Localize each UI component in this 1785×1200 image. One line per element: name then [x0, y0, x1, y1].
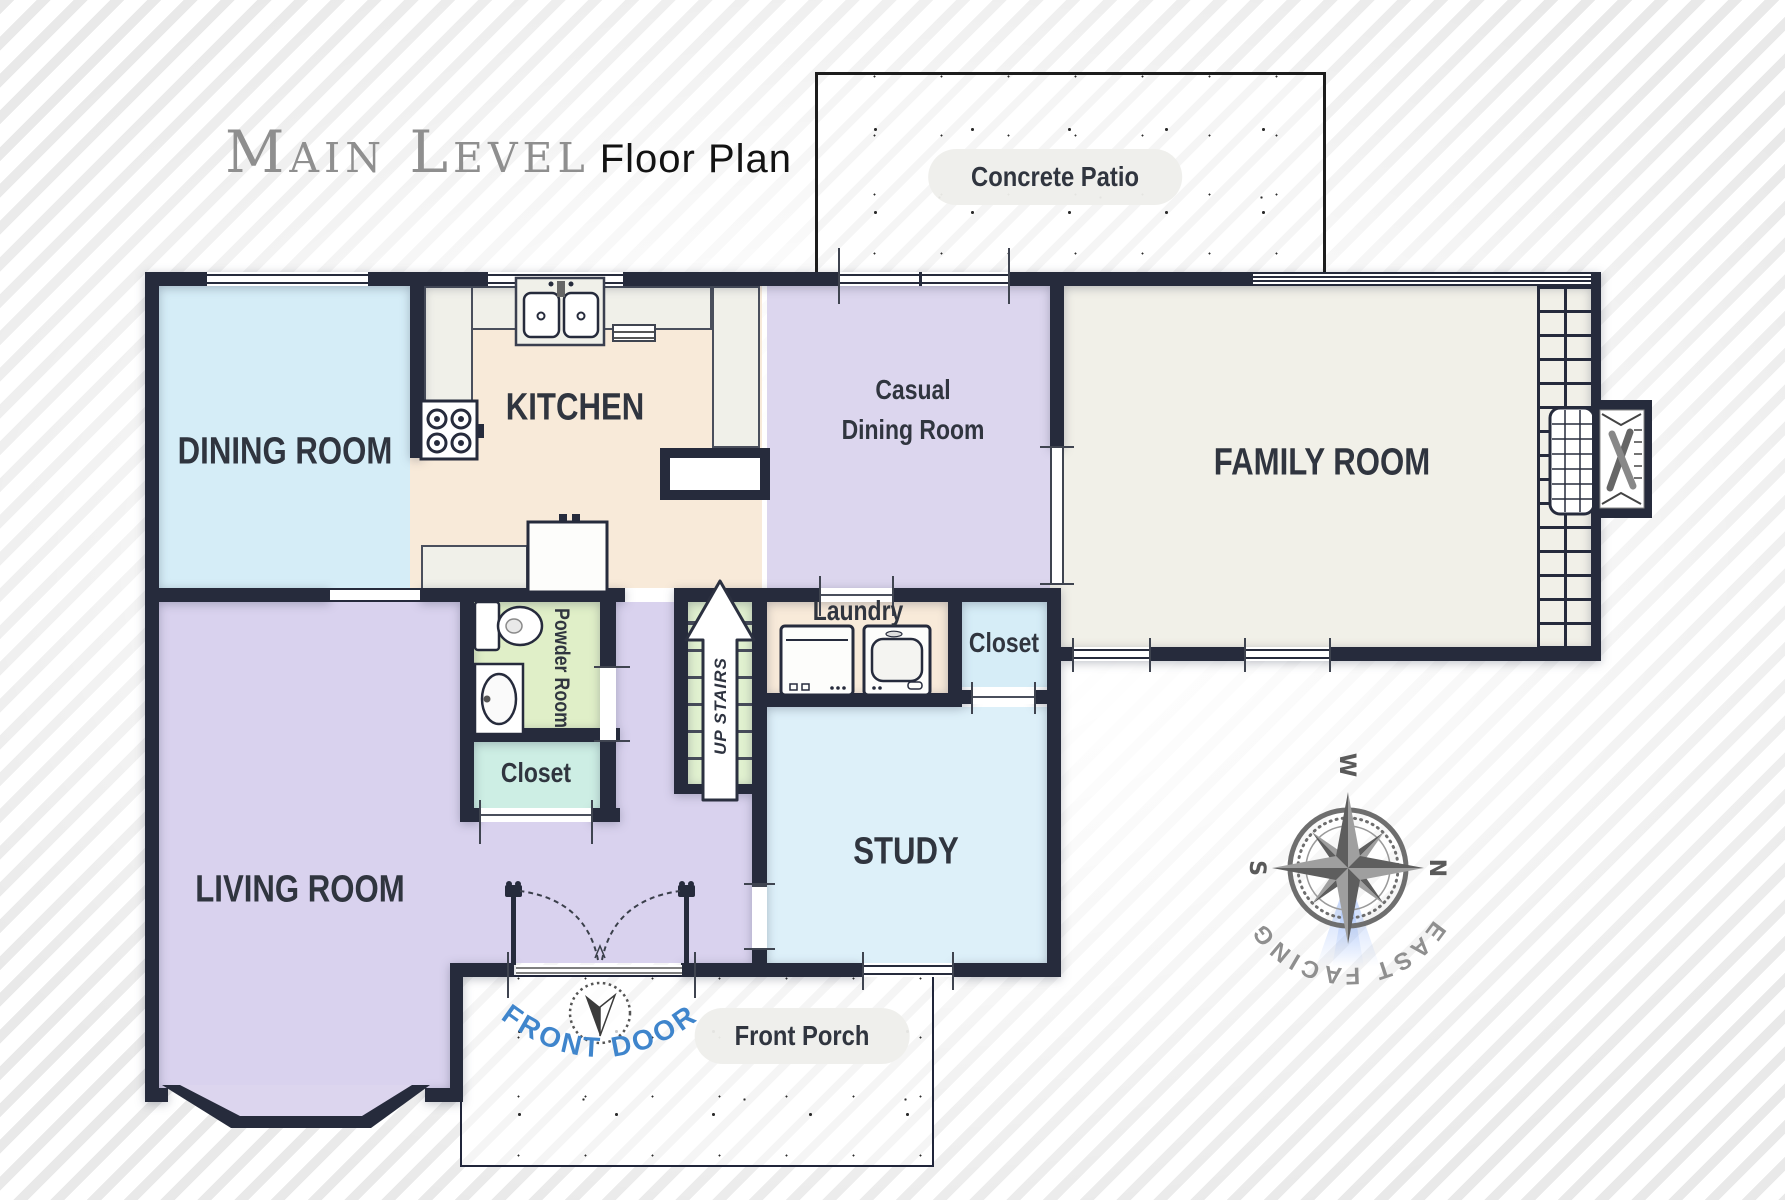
label-casual-line1: Casual — [842, 370, 985, 410]
sliding-window — [1253, 272, 1591, 286]
label-closet-hall: Closet — [501, 757, 571, 789]
cased-opening — [330, 588, 420, 602]
label-closet-laundry: Closet — [969, 627, 1039, 659]
label-casual-dining: Casual Dining Room — [842, 370, 985, 450]
window — [488, 272, 623, 286]
title-sub: Floor Plan — [600, 137, 792, 182]
door-opening — [600, 666, 616, 742]
label-laundry: Laundry — [813, 595, 904, 627]
title-main: Main Level — [225, 118, 590, 186]
label-family-room: FAMILY ROOM — [1214, 442, 1430, 485]
label-powder-room: Powder Room — [549, 608, 573, 728]
page-title: Main Level Floor Plan — [225, 118, 792, 186]
door-opening — [972, 690, 1035, 704]
door-opening — [752, 885, 767, 950]
window — [1073, 647, 1150, 661]
patio-door — [838, 272, 1008, 286]
label-kitchen: KITCHEN — [506, 387, 644, 430]
label-dining-room: DINING ROOM — [178, 431, 393, 474]
patio-door-divider — [919, 272, 922, 286]
window — [1245, 647, 1330, 661]
label-casual-line2: Dining Room — [842, 410, 985, 450]
label-front-porch: Front Porch — [695, 1008, 910, 1064]
floor-plan-page: Main Level Floor Plan — [0, 0, 1785, 1200]
label-up-stairs: UP STAIRS — [711, 657, 731, 755]
label-concrete-patio: Concrete Patio — [928, 149, 1182, 205]
window — [863, 963, 953, 977]
window — [207, 272, 368, 286]
door-opening — [480, 808, 592, 822]
label-living-room: LIVING ROOM — [195, 869, 404, 912]
cased-opening — [1050, 448, 1064, 585]
label-study: STUDY — [853, 831, 959, 874]
